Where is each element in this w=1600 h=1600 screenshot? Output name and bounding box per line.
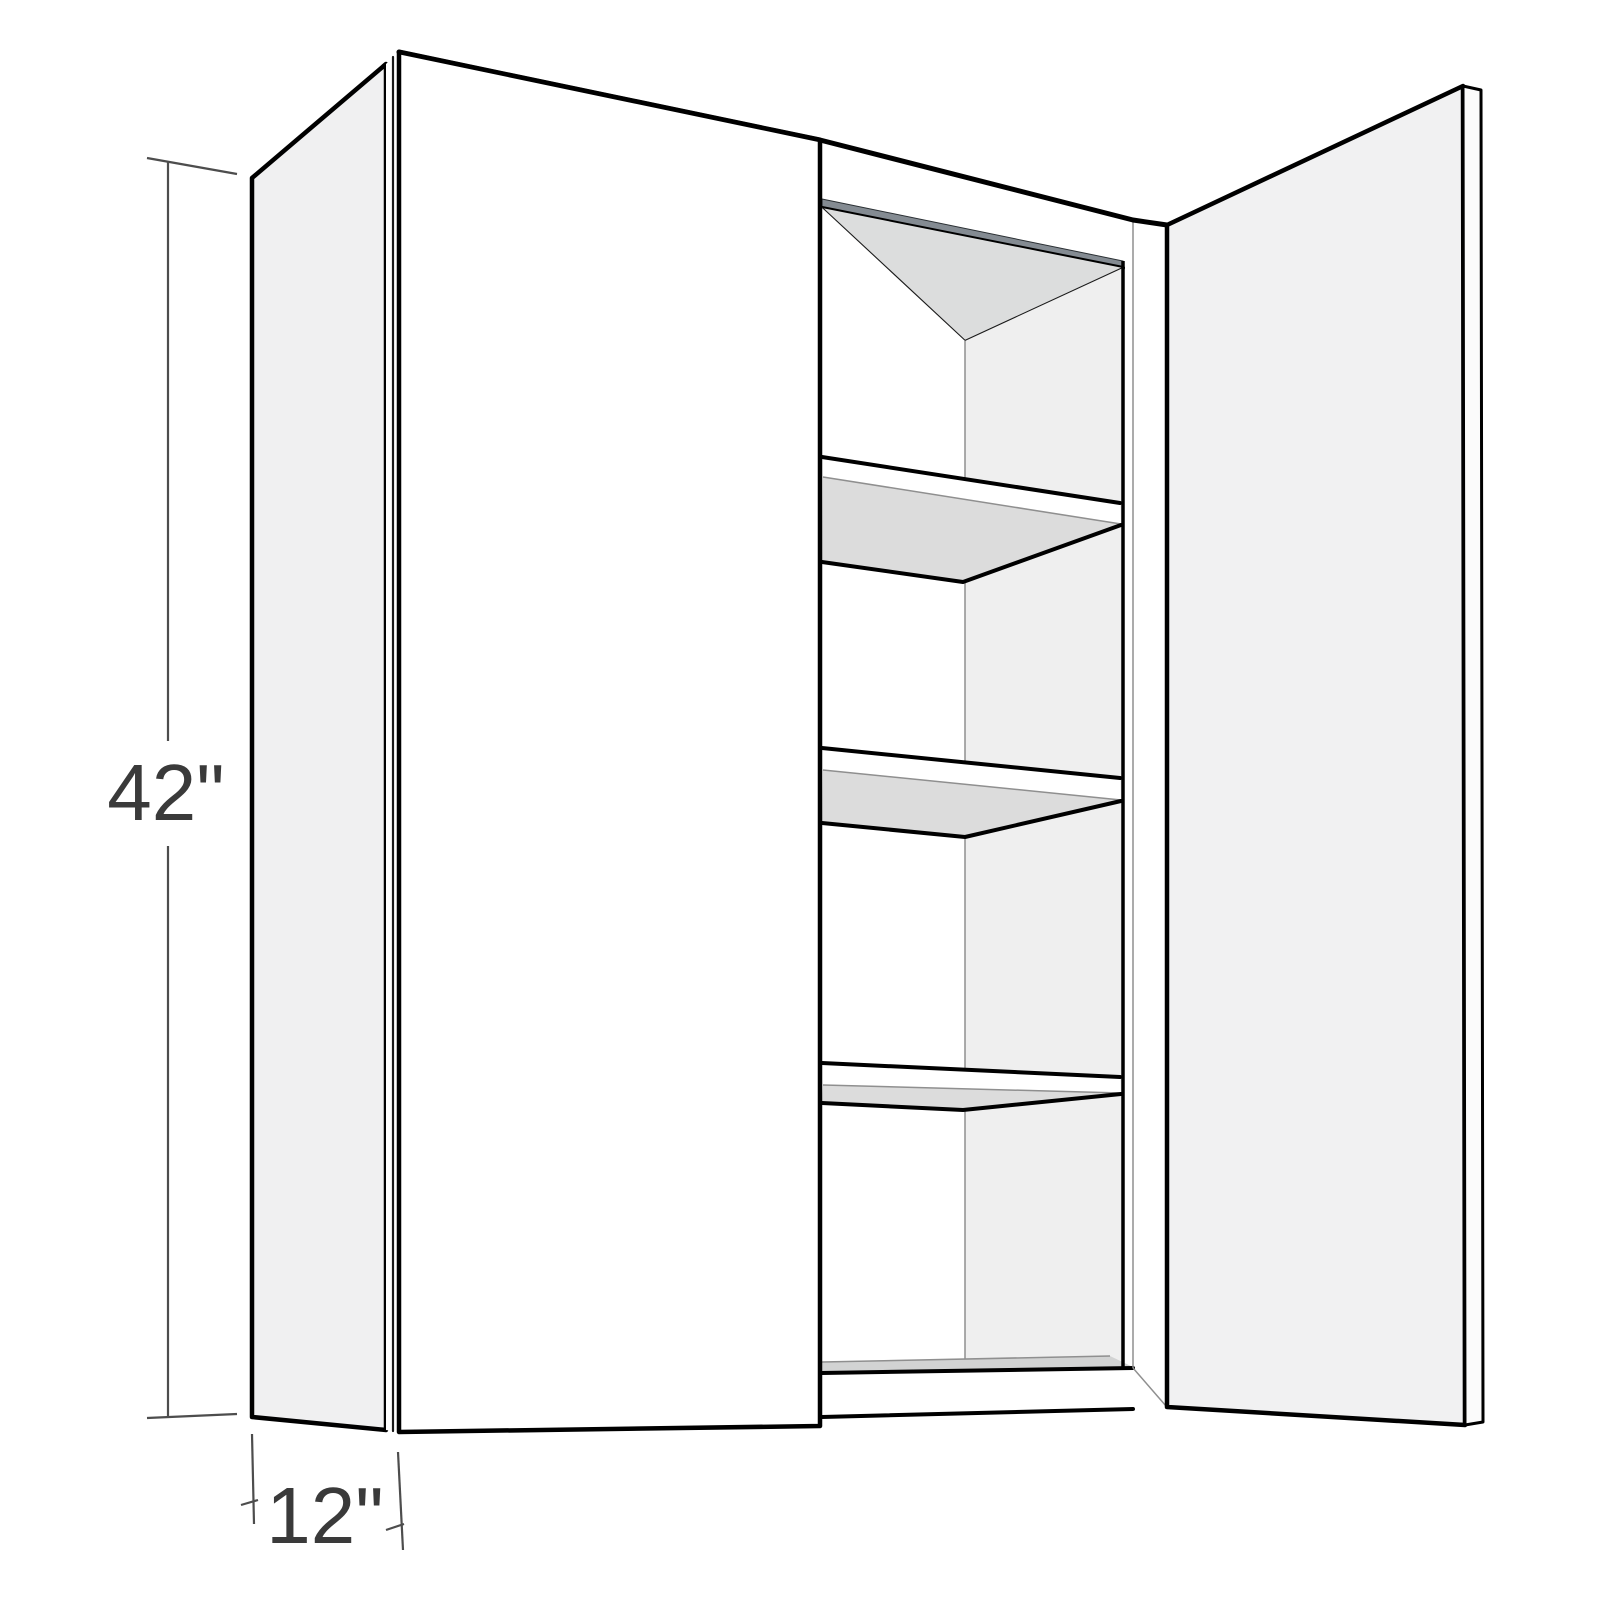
right-door	[1167, 86, 1483, 1425]
depth-dimension: 12"	[241, 1434, 404, 1560]
depth-tick-left	[241, 1500, 258, 1505]
depth-extension-line-right	[398, 1452, 403, 1550]
wall-cabinet	[252, 52, 1483, 1432]
height-extension-line-bottom	[147, 1414, 237, 1418]
right-door-face	[1167, 86, 1465, 1425]
depth-dimension-label: 12"	[266, 1471, 383, 1560]
cabinet-diagram: 42" 12"	[0, 0, 1600, 1600]
depth-extension-line-left	[252, 1434, 254, 1524]
left-door	[399, 52, 820, 1432]
height-dimension: 42"	[107, 158, 237, 1418]
right-door-edge-strip	[1463, 86, 1483, 1425]
height-dimension-label: 42"	[107, 748, 224, 837]
height-extension-line-top	[147, 158, 237, 174]
side-panel	[252, 64, 386, 1430]
